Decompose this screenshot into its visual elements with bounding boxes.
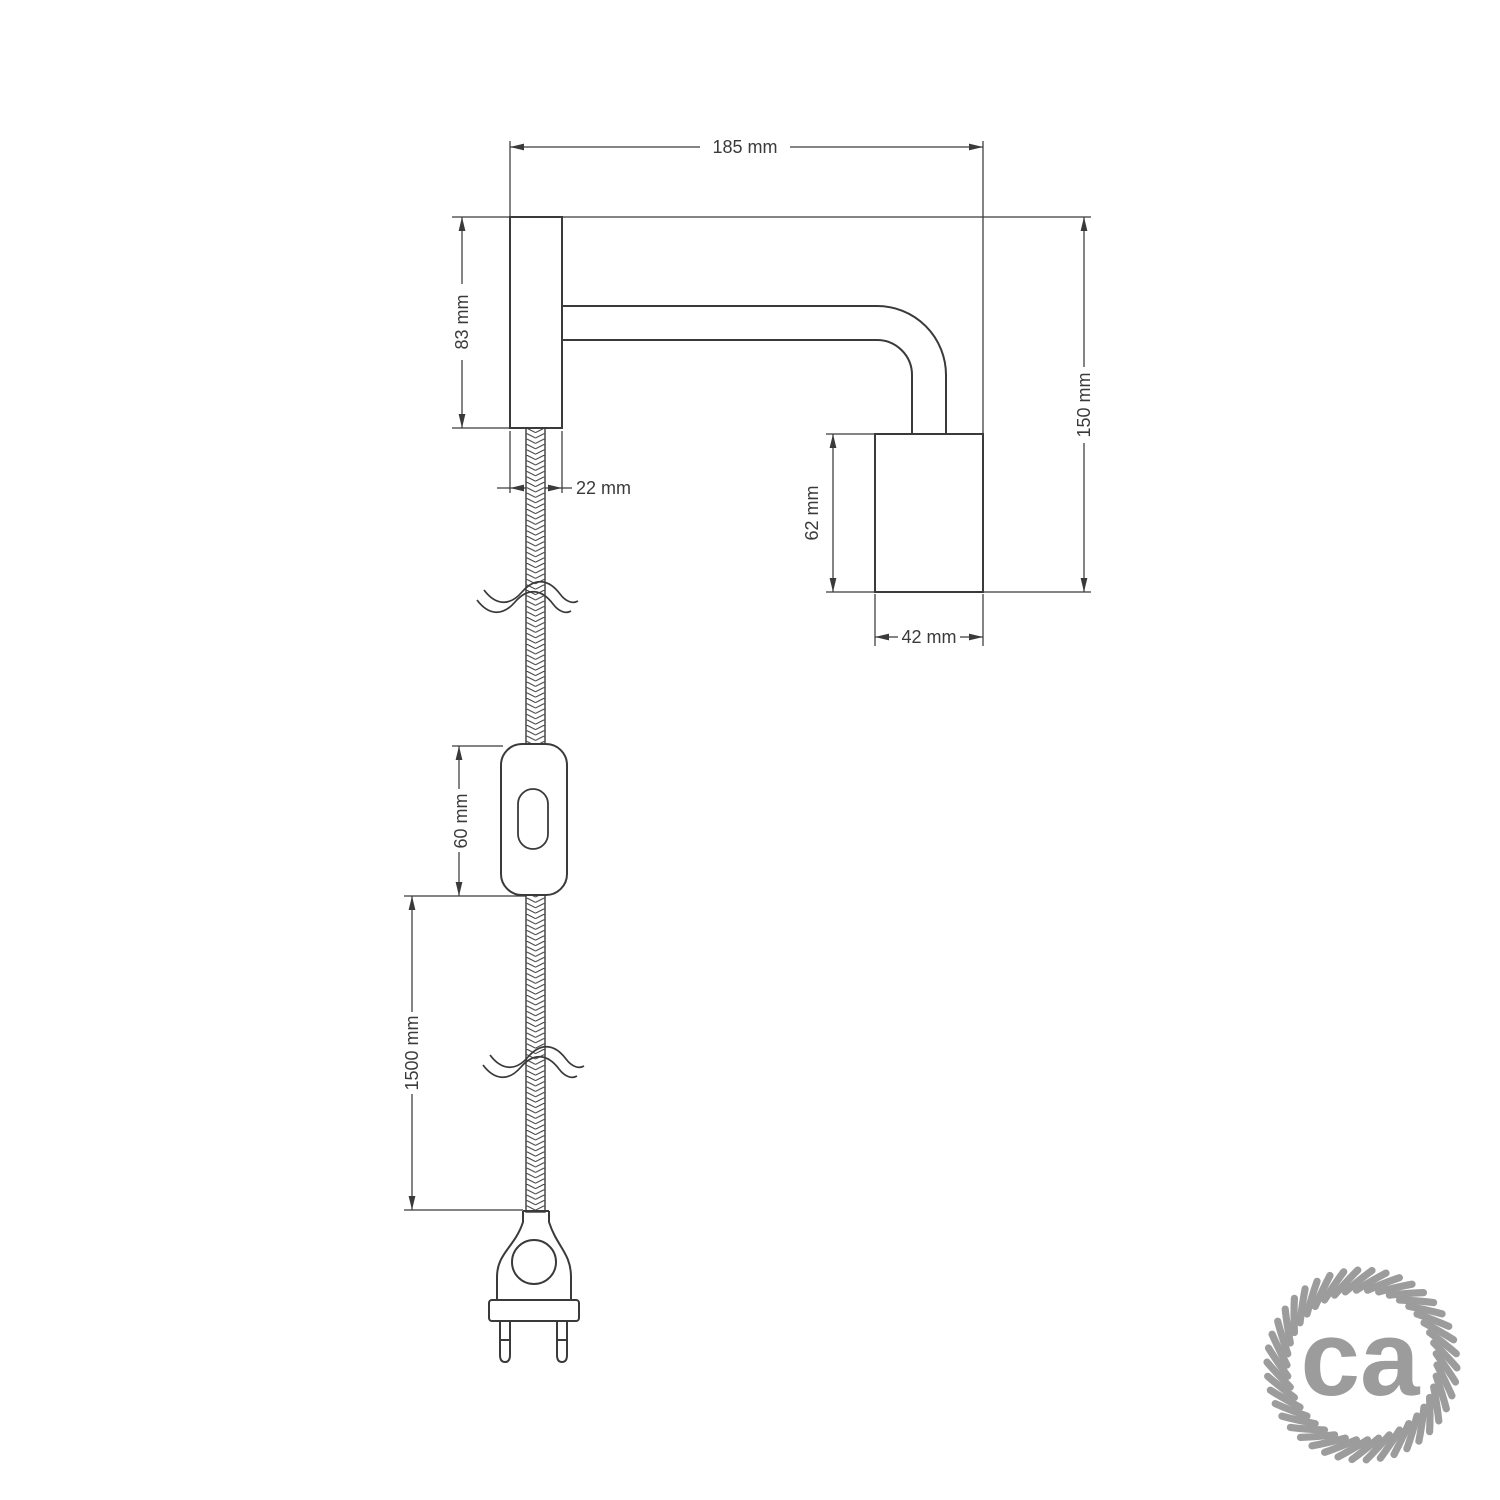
dimension-label-socket-height: 62 mm	[802, 485, 822, 540]
dimension-label-total-width: 185 mm	[712, 137, 777, 157]
plug-pins	[500, 1321, 567, 1362]
extension-tube	[562, 306, 946, 434]
dimension-label-switch-length: 60 mm	[451, 793, 471, 848]
inline-switch	[501, 744, 567, 895]
power-plug	[489, 1211, 579, 1362]
dimension-socket-height: 62 mm	[802, 434, 875, 592]
dimension-total-height: 150 mm	[562, 217, 1094, 592]
lamp-holder	[875, 434, 983, 592]
switch-rocker-button	[518, 789, 548, 849]
dimension-label-socket-width: 42 mm	[901, 627, 956, 647]
dimension-cable-length: 1500 mm	[402, 896, 523, 1210]
dimension-diagram: 185 mm 83 mm 22 mm 150 mm 62 mm	[0, 0, 1500, 1500]
dimension-socket-width: 42 mm	[875, 594, 983, 647]
plug-base	[489, 1300, 579, 1321]
brand-logo-text: ca	[1300, 1298, 1421, 1418]
dimension-plate-depth: 22 mm	[497, 431, 631, 498]
dimension-plate-height: 83 mm	[452, 217, 510, 428]
technical-drawing-page: 185 mm 83 mm 22 mm 150 mm 62 mm	[0, 0, 1500, 1500]
wall-lamp-outline	[510, 217, 983, 592]
cable-lower-segment	[526, 895, 545, 1212]
tube-elbow-inner-curve	[877, 340, 912, 434]
dimension-label-total-height: 150 mm	[1074, 372, 1094, 437]
dimension-label-plate-depth: 22 mm	[576, 478, 631, 498]
dimension-label-cable-length: 1500 mm	[402, 1015, 422, 1090]
plug-body	[497, 1211, 571, 1300]
dimension-label-plate-height: 83 mm	[452, 294, 472, 349]
brand-logo: ca	[1267, 1270, 1457, 1460]
plug-cable-grip-hole	[512, 1240, 556, 1284]
wall-mount-plate	[510, 217, 562, 428]
